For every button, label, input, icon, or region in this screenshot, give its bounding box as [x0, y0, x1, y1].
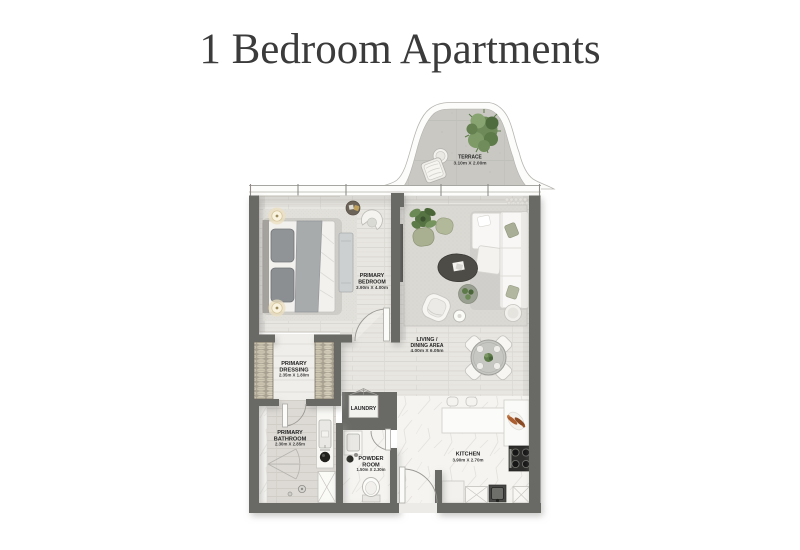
svg-text:3.90m X 2.70m: 3.90m X 2.70m — [453, 457, 484, 463]
svg-text:PRIMARY: PRIMARY — [360, 273, 385, 279]
svg-text:BEDROOM: BEDROOM — [358, 280, 386, 286]
svg-text:2.30m X 2.85m: 2.30m X 2.85m — [275, 441, 305, 446]
svg-text:3.90m X 4.00m: 3.90m X 4.00m — [356, 285, 388, 291]
svg-text:TERRACE: TERRACE — [458, 155, 482, 161]
svg-text:POWDER: POWDER — [358, 456, 383, 462]
svg-text:2.35m X 1.80m: 2.35m X 1.80m — [279, 372, 309, 377]
svg-text:4.00m X 6.05m: 4.00m X 6.05m — [411, 348, 444, 354]
svg-text:1 Bedroom Apartments: 1 Bedroom Apartments — [199, 26, 600, 73]
svg-text:LAUNDRY: LAUNDRY — [351, 406, 377, 412]
svg-text:KITCHEN: KITCHEN — [456, 452, 481, 458]
svg-text:3.10m X 2.00m: 3.10m X 2.00m — [453, 161, 486, 167]
svg-text:PRIMARY: PRIMARY — [277, 430, 303, 436]
svg-text:PRIMARY: PRIMARY — [281, 361, 307, 367]
svg-text:1.50m X 2.30m: 1.50m X 2.30m — [357, 467, 386, 472]
svg-text:DINING AREA: DINING AREA — [411, 343, 445, 349]
